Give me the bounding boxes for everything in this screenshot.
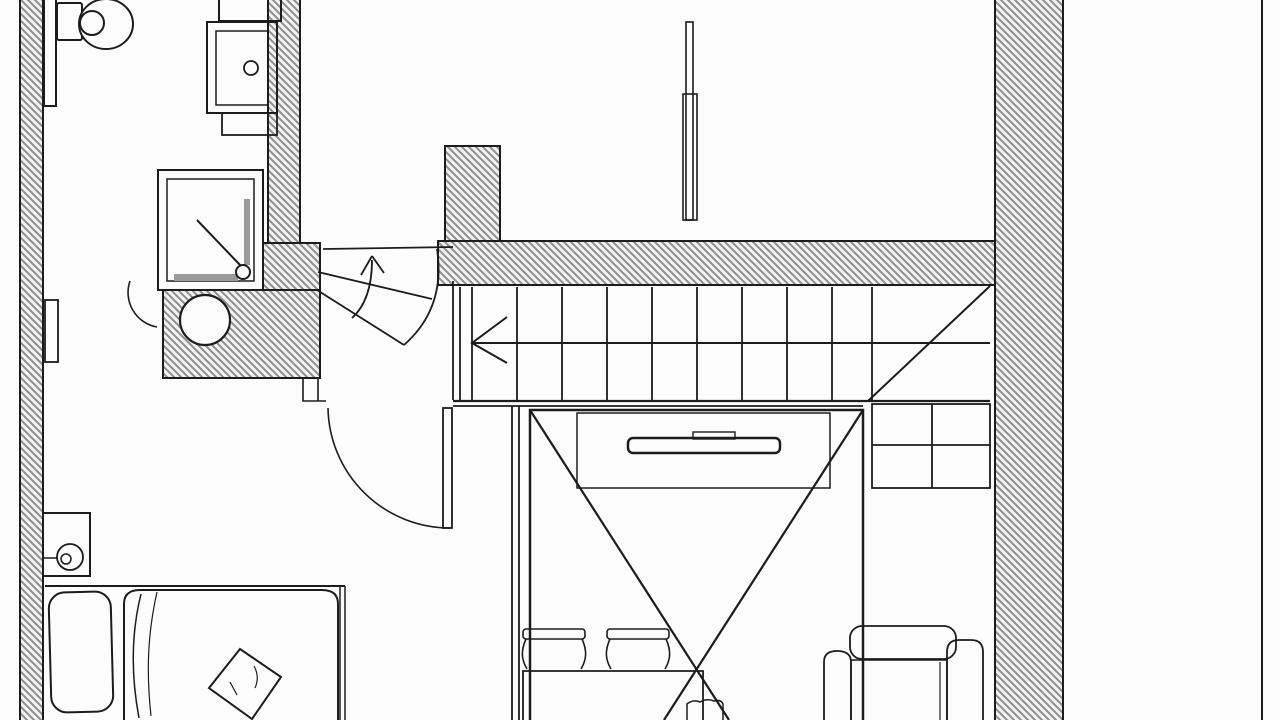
floor-plan-screenshot [0, 0, 1280, 720]
exterior-wall-left [20, 0, 43, 720]
toilet-bowl [79, 0, 133, 49]
exterior-wall-right [995, 0, 1063, 720]
partition-leaf-long [686, 22, 693, 220]
stair-wall-column [445, 146, 500, 243]
bathroom-wall-extension [263, 243, 320, 292]
floor-plan-canvas [0, 0, 1280, 720]
bathroom-door-leaf [45, 300, 58, 362]
shower-drain-dot [236, 265, 250, 279]
shower-glass-mark-horizontal [174, 274, 238, 281]
bathroom-wall-column [268, 0, 300, 245]
shower-glass-mark-vertical [244, 199, 250, 265]
toilet-back-partition [44, 0, 56, 106]
round-duct-in-service-block [180, 295, 230, 345]
main-horizontal-wall [438, 241, 995, 285]
